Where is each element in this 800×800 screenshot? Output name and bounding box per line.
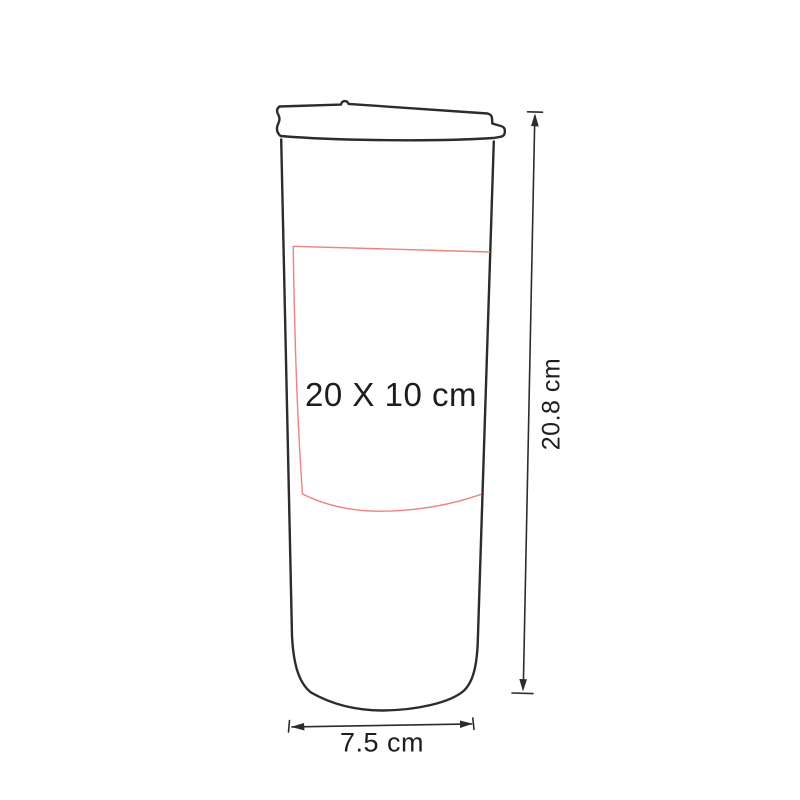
- arrow-up-icon: [531, 114, 539, 127]
- print-area-size-label: 20 X 10 cm: [305, 376, 477, 414]
- arrow-right-icon: [460, 721, 473, 729]
- height-dimension-shaft: [523, 116, 535, 688]
- width-value-label: 7.5 cm: [340, 728, 424, 759]
- tumbler-lid-outline: [277, 101, 505, 140]
- width-dimension-shaft: [292, 724, 472, 727]
- height-value-label: 20.8 cm: [538, 358, 567, 450]
- arrow-down-icon: [519, 679, 527, 692]
- tumbler-body-outline: [281, 140, 494, 711]
- width-dimension-right-tick: [473, 718, 474, 730]
- height-dimension-bottom-cap: [512, 693, 533, 694]
- arrow-left-icon: [291, 723, 305, 731]
- product-dimension-diagram: 20 X 10 cm 20.8 cm 7.5 cm: [0, 0, 800, 800]
- width-dimension-left-tick: [289, 721, 290, 733]
